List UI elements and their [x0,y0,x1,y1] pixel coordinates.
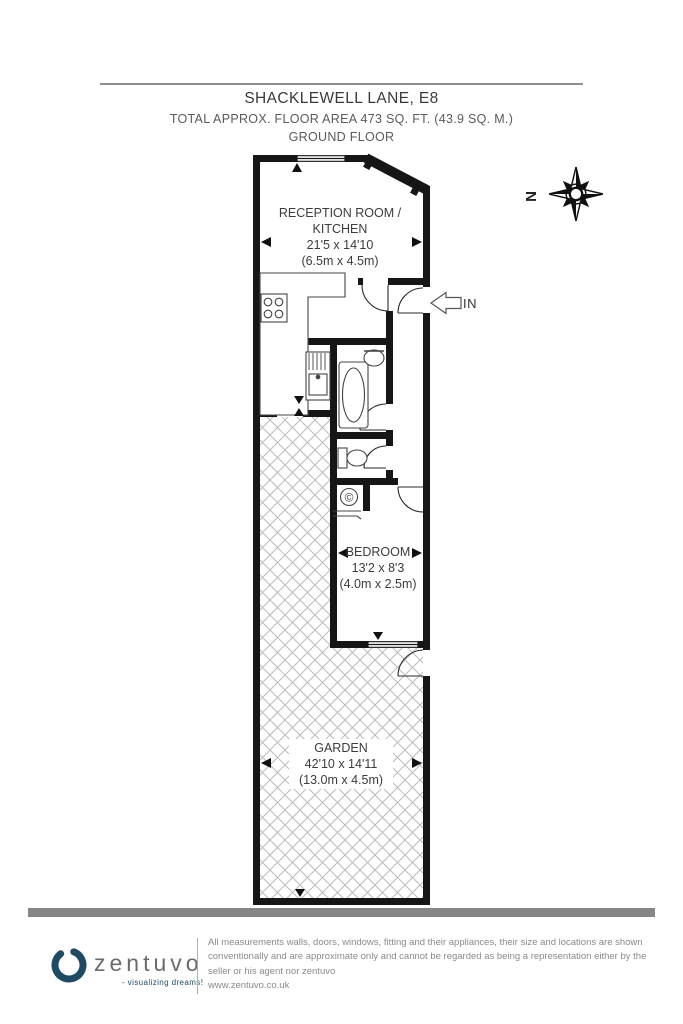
compass-north-label: N [523,191,540,202]
floor-area-line: TOTAL APPROX. FLOOR AREA 473 SQ. FT. (43… [0,112,683,126]
compass-rose-icon [548,166,604,222]
zentuvo-logo-icon [50,946,90,986]
garden-size-imperial: 42'10 x 14'11 [299,756,383,772]
garden-size-metric: (13.0m x 4.5m) [299,772,383,788]
hall-door [362,285,388,311]
reception-name-1: RECEPTION ROOM / [279,205,401,221]
entrance-door [398,288,423,313]
bedroom-door [398,487,423,512]
bedroom-label: BEDROOM 13'2 x 8'3 (4.0m x 2.5m) [339,544,416,592]
garden-name: GARDEN [299,740,383,756]
bedroom-size-metric: (4.0m x 2.5m) [339,576,416,592]
logo-tagline: - visualizing dreams! [122,978,203,987]
footer-bar [28,908,655,917]
radiator-icon [333,511,361,519]
footer-divider [197,938,198,994]
floor-name-line: GROUND FLOOR [0,130,683,144]
reception-name-2: KITCHEN [279,221,401,237]
logo-wordmark: zentuvo [94,950,203,977]
hob-icon [261,294,287,322]
garden-label: GARDEN 42'10 x 14'11 (13.0m x 4.5m) [289,739,393,789]
window-top [297,155,345,162]
top-rule [100,83,583,85]
header: SHACKLEWELL LANE, E8 TOTAL APPROX. FLOOR… [0,90,683,144]
bathtub-icon [339,362,368,428]
window-bedroom [368,641,418,648]
entrance-arrow-icon [431,293,461,314]
disclaimer-text: All measurements walls, doors, windows, … [208,937,646,977]
reception-room-label: RECEPTION ROOM / KITCHEN 21'5 x 14'10 (6… [279,205,401,269]
footer-disclaimer: All measurements walls, doors, windows, … [208,936,670,993]
boiler-icon: © [341,489,358,506]
website-url: www.zentuvo.co.uk [208,979,670,993]
bedroom-name: BEDROOM [339,544,416,560]
svg-text:©: © [345,491,354,505]
sink-icon [306,352,330,400]
bedroom-size-imperial: 13'2 x 8'3 [339,560,416,576]
page-title: SHACKLEWELL LANE, E8 [0,90,683,108]
reception-size-metric: (6.5m x 4.5m) [279,253,401,269]
floorplan-page: { "header": { "title": "SHACKLEWELL LANE… [0,0,683,1024]
toilet-icon [338,448,367,468]
reception-size-imperial: 21'5 x 14'10 [279,237,401,253]
chamfer-wall [366,158,427,190]
entrance-in-label: IN [463,296,477,311]
washbasin-icon [364,350,384,366]
